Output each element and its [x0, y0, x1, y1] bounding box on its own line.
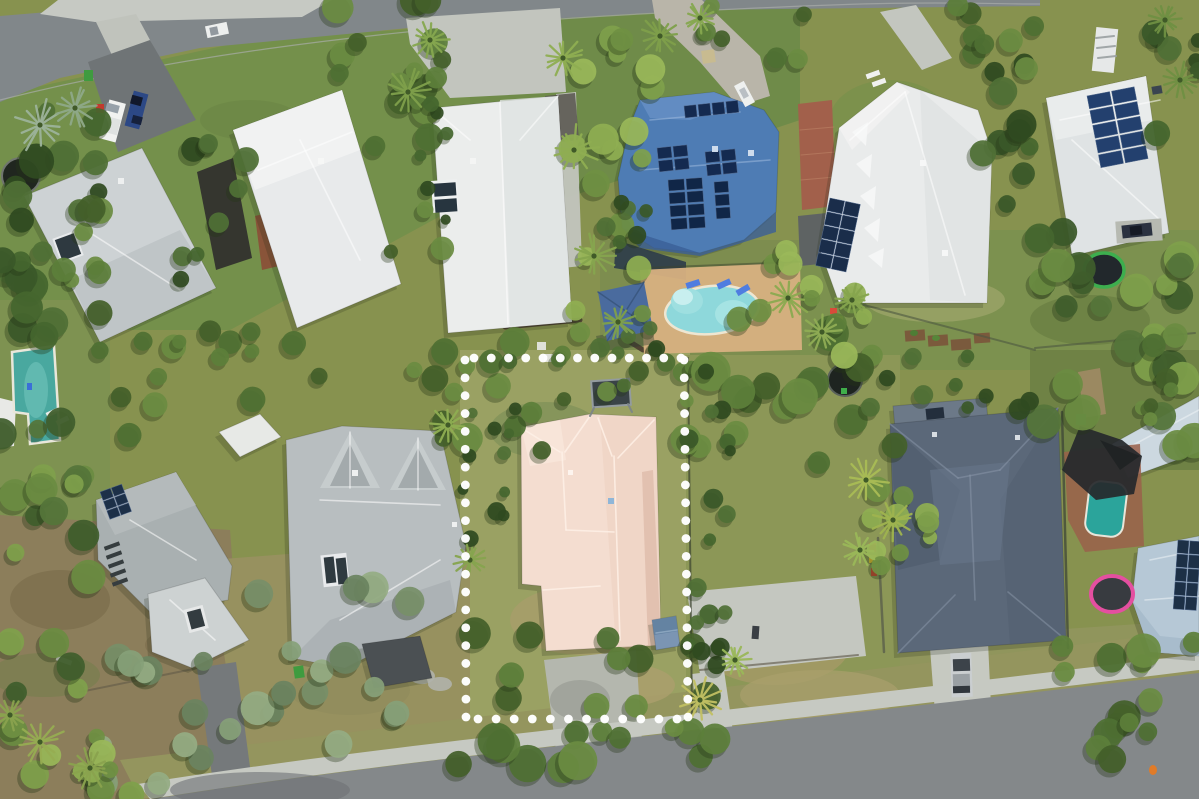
boundary-dot	[590, 354, 599, 363]
boundary-dot	[474, 715, 483, 724]
boundary-dot	[625, 354, 634, 363]
boundary-dot	[680, 427, 689, 436]
house-right-slate	[886, 408, 1066, 658]
boundary-dot	[681, 463, 690, 472]
boundary-dot	[461, 516, 470, 525]
boundary-dot	[680, 356, 689, 365]
boundary-dot	[673, 715, 682, 724]
boundary-dot	[682, 570, 691, 579]
boundary-dot	[462, 713, 471, 722]
boundary-dot	[681, 498, 690, 507]
boundary-dot	[528, 715, 537, 724]
boundary-dot	[681, 481, 690, 490]
boundary-dot	[461, 391, 470, 400]
boundary-dot	[461, 373, 470, 382]
boundary-dot	[642, 354, 651, 363]
boundary-dot	[682, 534, 691, 543]
boundary-dot	[461, 570, 470, 579]
boundary-dot	[461, 427, 470, 436]
boundary-dot	[655, 715, 664, 724]
boundary-dot	[461, 641, 470, 650]
boundary-dot	[683, 695, 692, 704]
boundary-dot	[461, 481, 470, 490]
boundary-dot	[510, 715, 519, 724]
boundary-dot	[461, 356, 470, 365]
boundary-dot	[683, 659, 692, 668]
boundary-dot	[546, 715, 555, 724]
solar-panel-array	[714, 181, 731, 219]
boundary-dot	[682, 552, 691, 561]
solar-panel-array	[1173, 540, 1199, 610]
boundary-dot	[461, 623, 470, 632]
boundary-dot	[461, 409, 470, 418]
boundary-dot	[470, 354, 479, 363]
boundary-dot	[683, 641, 692, 650]
boundary-dot	[564, 715, 573, 724]
boundary-dot	[680, 373, 689, 382]
boundary-dot	[681, 516, 690, 525]
boundary-dot	[556, 354, 565, 363]
boundary-dot	[680, 391, 689, 400]
boundary-dot	[504, 354, 513, 363]
boundary-dot	[521, 354, 530, 363]
boundary-dot	[608, 354, 617, 363]
boundary-dot	[659, 354, 668, 363]
boundary-dot	[682, 588, 691, 597]
boundary-dot	[461, 498, 470, 507]
boundary-dot	[461, 463, 470, 472]
boundary-dot	[600, 715, 609, 724]
boundary-dot	[539, 354, 548, 363]
boundary-dot	[461, 659, 470, 668]
boundary-dot	[492, 715, 501, 724]
boundary-dot	[680, 409, 689, 418]
boundary-dot	[682, 606, 691, 615]
boundary-dot	[461, 445, 470, 454]
boundary-dot	[573, 354, 582, 363]
shed-blue	[648, 616, 680, 655]
boundary-dot	[462, 695, 471, 704]
aerial-photo	[0, 0, 1199, 799]
boundary-dot	[618, 715, 627, 724]
boundary-dot	[462, 677, 471, 686]
boundary-dot	[461, 534, 470, 543]
boundary-dot	[461, 606, 470, 615]
boundary-dot	[681, 445, 690, 454]
boundary-dot	[684, 713, 693, 722]
boundary-dot	[461, 588, 470, 597]
boundary-dot	[683, 677, 692, 686]
aerial-photo-frame	[0, 0, 1199, 799]
boundary-dot	[636, 715, 645, 724]
boundary-dot	[582, 715, 591, 724]
boundary-dot	[461, 552, 470, 561]
boundary-dot	[683, 623, 692, 632]
boundary-dot	[487, 354, 496, 363]
